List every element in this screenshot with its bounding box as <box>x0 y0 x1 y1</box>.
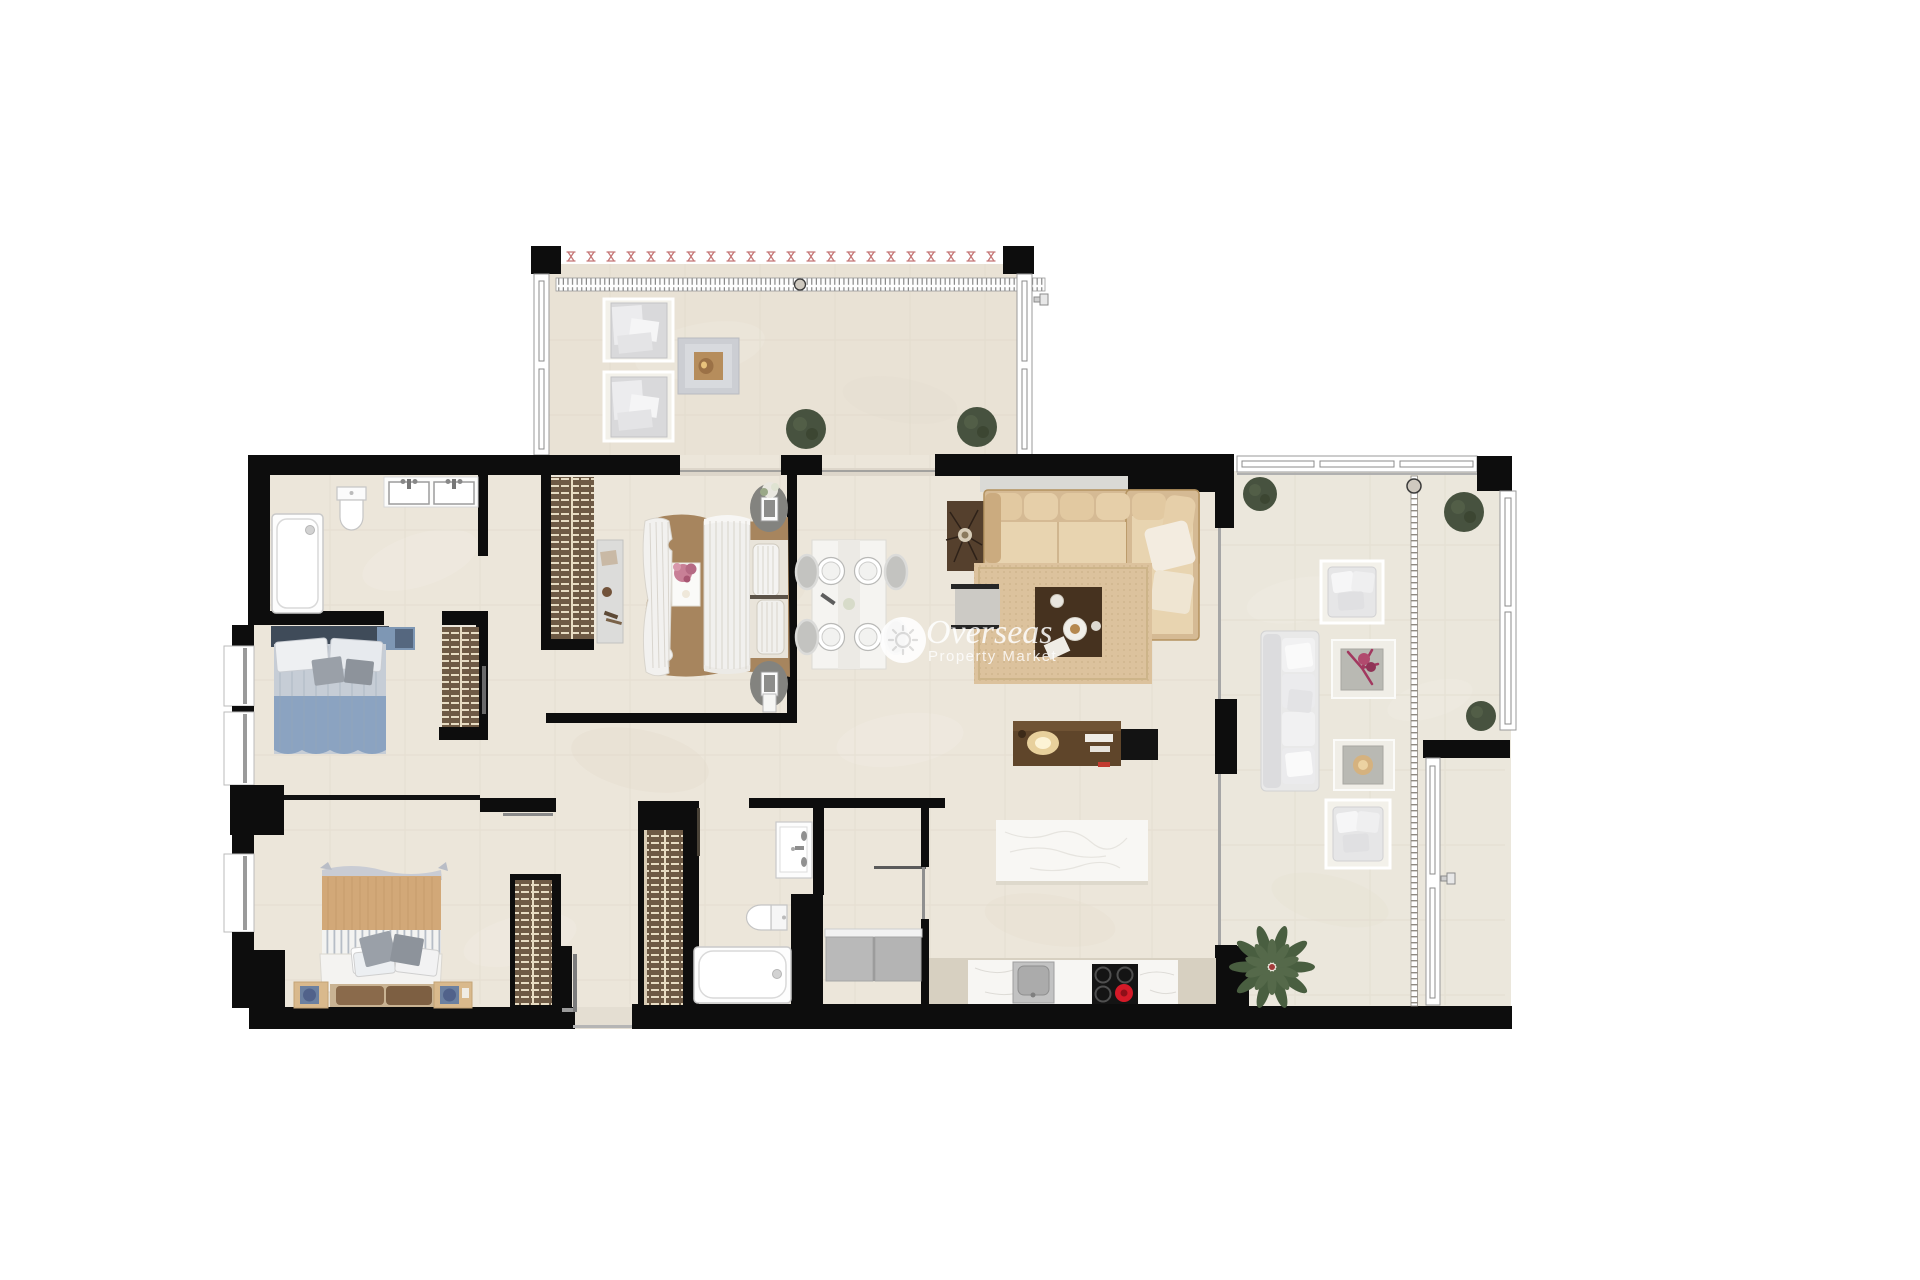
svg-text:Overseas: Overseas <box>926 614 1053 651</box>
svg-text:Property Market: Property Market <box>928 648 1057 665</box>
